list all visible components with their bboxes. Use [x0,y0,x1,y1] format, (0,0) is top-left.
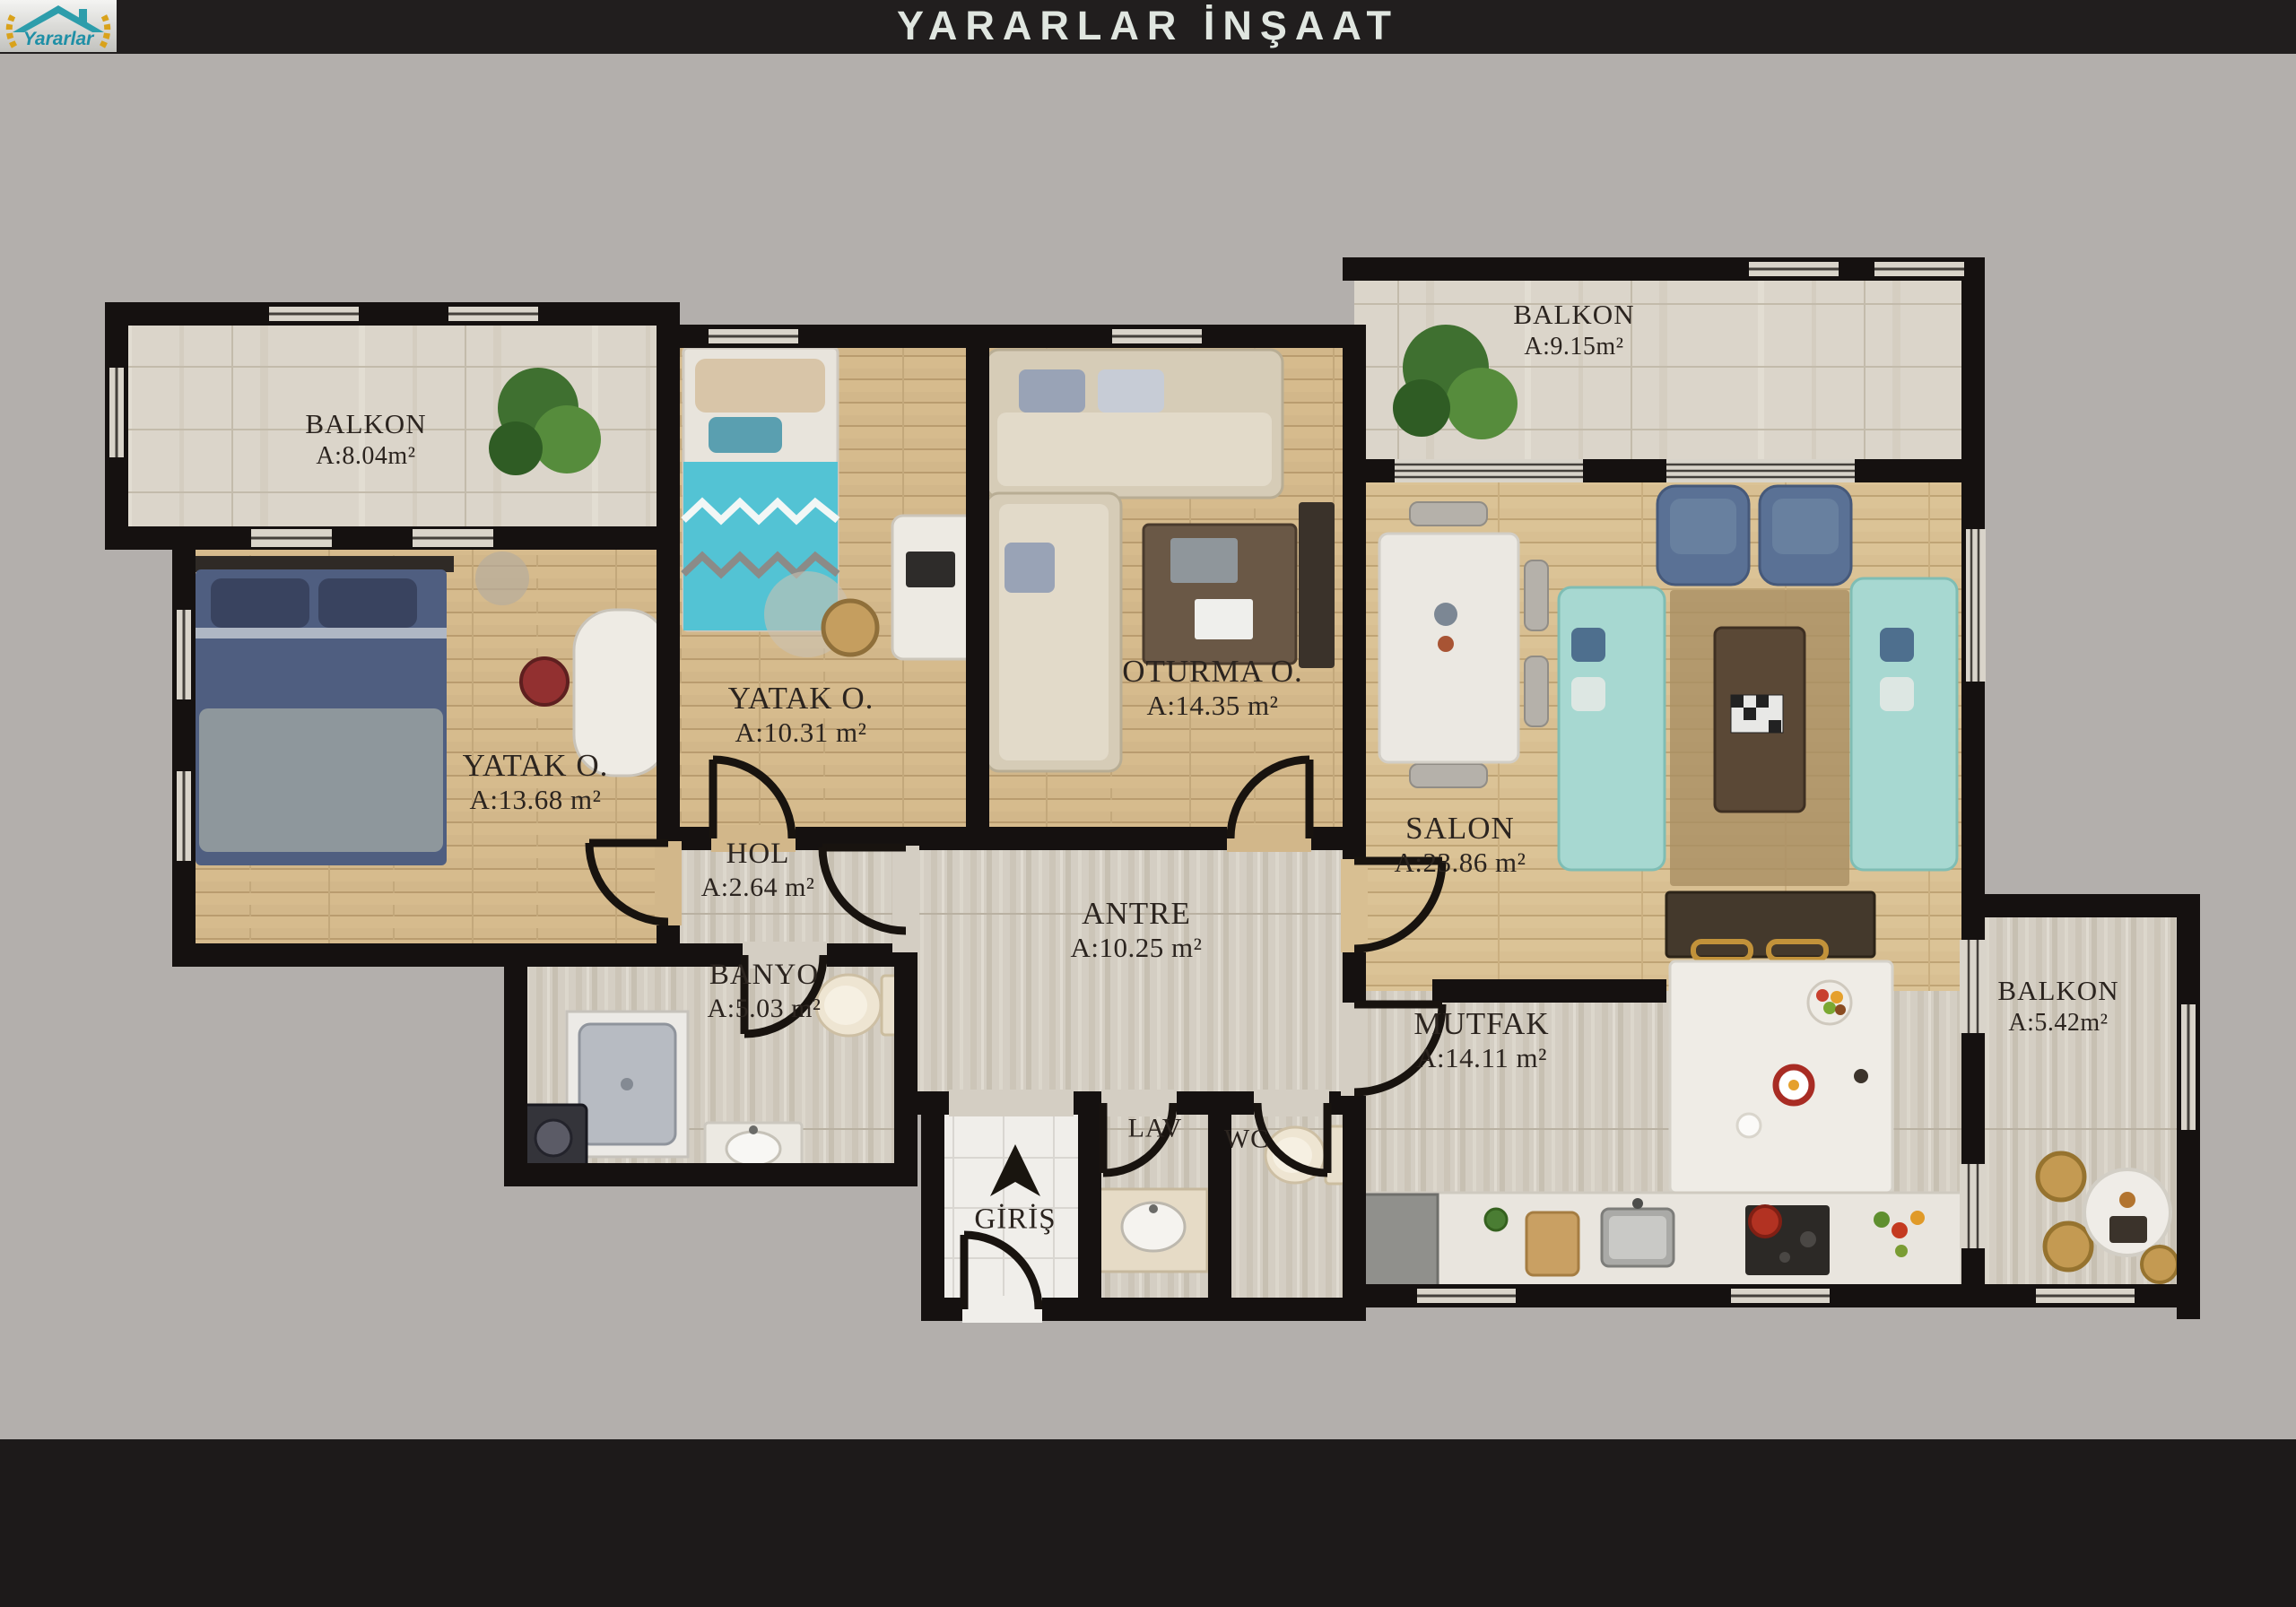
room-label-balkon-br: BALKONA:5.42m² [1997,975,2118,1038]
room-label-balkon-tr: BALKONA:9.15m² [1513,299,1634,361]
room-label-yatak-1: YATAK O.A:13.68 m² [463,747,609,817]
kitchen-counter [1359,1193,1961,1293]
double-bed [188,556,454,865]
washing-machine [520,1105,587,1171]
tv-console [1299,502,1335,668]
room-label-antre: ANTREA:10.25 m² [1071,895,1203,965]
wicker-chair [823,601,877,655]
room-label-wc: WC [1224,1123,1269,1154]
salon-coffee-table [1715,628,1805,812]
room-label-yatak-2: YATAK O.A:10.31 m² [728,680,874,750]
desk [892,516,978,659]
room-label-hol: HOLA:2.64 m² [701,837,815,903]
room-label-balkon-tl: BALKONA:8.04m² [305,408,426,471]
page: Yararlar YARARLAR İNŞAAT [0,0,2296,1607]
room-label-lav: LAV [1128,1112,1183,1143]
sofa-right [1851,578,1957,870]
room-label-oturma: OTURMA O.A:14.35 m² [1122,653,1303,723]
room-label-banyo: BANYOA:5.03 m² [708,958,822,1024]
room-label-mutfak: MUTFAKA:14.11 m² [1413,1005,1549,1075]
kitchen-island [1670,942,1892,1212]
toilet [816,975,903,1036]
footer: A BLOK NORMAL KAT 3+1 DAİRE BRÜT ALAN:15… [0,1439,2296,1607]
page-title: YARARLAR İNŞAAT [0,3,2296,49]
room-label-giris: GİRİŞ [974,1203,1056,1238]
floor-plan-drawing [0,54,2296,1439]
room-antre [906,838,1354,1103]
app-header: Yararlar YARARLAR İNŞAAT [0,0,2296,54]
lav-sink [1100,1189,1207,1272]
coffee-table [1144,525,1296,664]
room-label-salon: SALONA:23.86 m² [1395,810,1526,880]
sofa-left [1559,587,1665,870]
floor-plan: BALKONA:8.04m² YATAK O.A:13.68 m² YATAK … [0,54,2296,1439]
